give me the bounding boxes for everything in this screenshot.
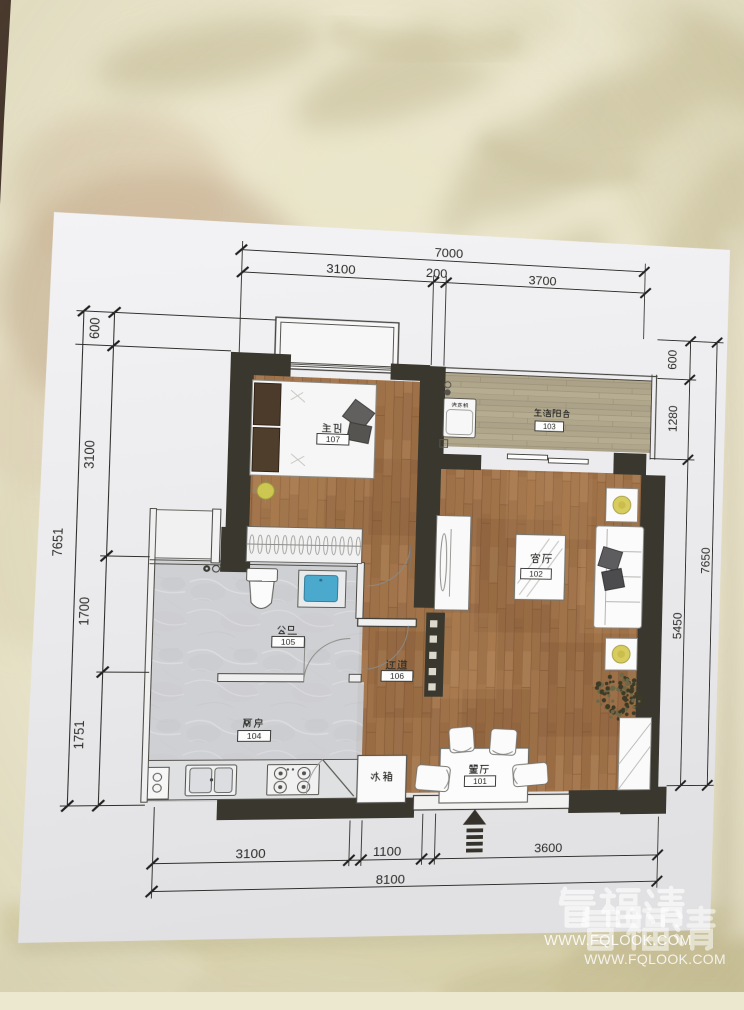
svg-text:WWW.FQLOOK.COM: WWW.FQLOOK.COM [584,951,726,967]
svg-text:WWW.FQLOOK.COM: WWW.FQLOOK.COM [544,933,692,949]
